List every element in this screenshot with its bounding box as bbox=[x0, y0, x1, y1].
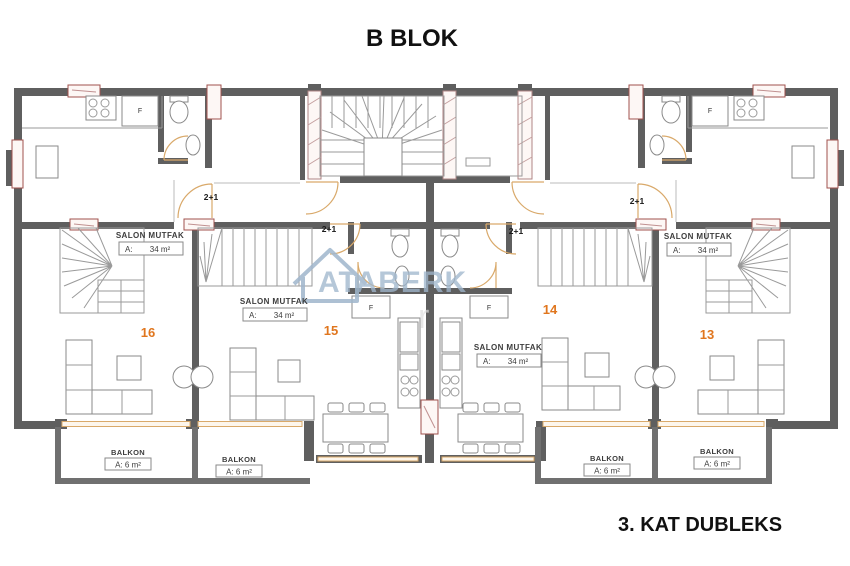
unit-16-stairs bbox=[60, 228, 144, 313]
balcony-label: BALKON bbox=[700, 447, 734, 456]
unit-type-label: 2+1 bbox=[630, 196, 645, 206]
central-staircase bbox=[320, 96, 522, 176]
center-kitchen-left bbox=[352, 296, 420, 408]
floor-caption: 3. KAT DUBLEKS bbox=[618, 514, 782, 536]
center-kitchen-right bbox=[440, 296, 508, 408]
dining-set-left bbox=[323, 403, 388, 453]
area-value: 34 m² bbox=[274, 311, 295, 320]
floor-plan-drawing: ATABERK r B BLOK 3. KAT DUBLEKS SALON MU… bbox=[0, 0, 850, 566]
unit-13-labels: SALON MUTFAK A: 34 m² 13 bbox=[664, 232, 732, 342]
floor-plan-page: ATABERK r B BLOK 3. KAT DUBLEKS SALON MU… bbox=[0, 0, 850, 566]
balcony-label: BALKON bbox=[590, 454, 624, 463]
balcony-label: BALKON bbox=[111, 448, 145, 457]
balcony-14-labels: BALKON A: 6 m² bbox=[584, 454, 630, 476]
unit-number-14: 14 bbox=[543, 302, 558, 317]
balcony-area: A: 6 m² bbox=[115, 461, 141, 470]
area-value: 34 m² bbox=[698, 246, 719, 255]
area-value: 34 m² bbox=[508, 357, 529, 366]
unit-type-label: 2+1 bbox=[322, 224, 337, 234]
sofa-unit-14 bbox=[542, 338, 620, 410]
watermark-ghost: r bbox=[418, 298, 429, 336]
fridge-label: F bbox=[138, 108, 142, 115]
area-key: A: bbox=[673, 246, 681, 255]
framed-windows bbox=[12, 85, 838, 434]
unit-type-label: 2+1 bbox=[204, 192, 219, 202]
balcony-area: A: 6 m² bbox=[226, 468, 252, 477]
balcony-15-labels: BALKON A: 6 m² bbox=[216, 455, 262, 477]
area-key: A: bbox=[483, 357, 491, 366]
unit-type-label: 2+1 bbox=[509, 226, 524, 236]
sofa-unit-15 bbox=[230, 348, 314, 420]
unit-type-labels: 2+1 2+1 2+1 2+1 bbox=[204, 192, 645, 236]
balcony-16-labels: BALKON A: 6 m² bbox=[105, 448, 151, 470]
top-left-bathroom bbox=[170, 96, 200, 155]
unit-14-stairs bbox=[538, 228, 652, 286]
balcony-area: A: 6 m² bbox=[704, 460, 730, 469]
fridge-label: F bbox=[369, 305, 373, 312]
area-key: A: bbox=[125, 245, 133, 254]
balcony-13-labels: BALKON A: 6 m² bbox=[694, 447, 740, 469]
stair-core-columns bbox=[308, 91, 532, 179]
area-value: 34 m² bbox=[150, 245, 171, 254]
room-label: SALON MUTFAK bbox=[240, 297, 308, 306]
unit-16-labels: SALON MUTFAK A: 34 m² 16 bbox=[116, 231, 184, 340]
room-label: SALON MUTFAK bbox=[664, 232, 732, 241]
sofa-unit-16 bbox=[66, 340, 213, 414]
fridge-label: F bbox=[708, 108, 712, 115]
unit-number-13: 13 bbox=[700, 327, 714, 342]
fridge-label: F bbox=[487, 305, 491, 312]
area-key: A: bbox=[249, 311, 257, 320]
dining-set-right bbox=[458, 403, 523, 453]
unit-number-15: 15 bbox=[324, 323, 338, 338]
balcony-label: BALKON bbox=[222, 455, 256, 464]
unit-number-16: 16 bbox=[141, 325, 155, 340]
corridor-lines bbox=[174, 180, 676, 222]
room-label: SALON MUTFAK bbox=[116, 231, 184, 240]
unit-15-labels: SALON MUTFAK A: 34 m² 15 bbox=[240, 297, 338, 338]
room-label: SALON MUTFAK bbox=[474, 343, 542, 352]
watermark-text: ATABERK bbox=[318, 266, 467, 299]
unit-15-stairs bbox=[198, 228, 312, 286]
top-right-bathroom bbox=[650, 96, 680, 155]
page-title: B BLOK bbox=[366, 25, 459, 52]
balcony-area: A: 6 m² bbox=[594, 467, 620, 476]
